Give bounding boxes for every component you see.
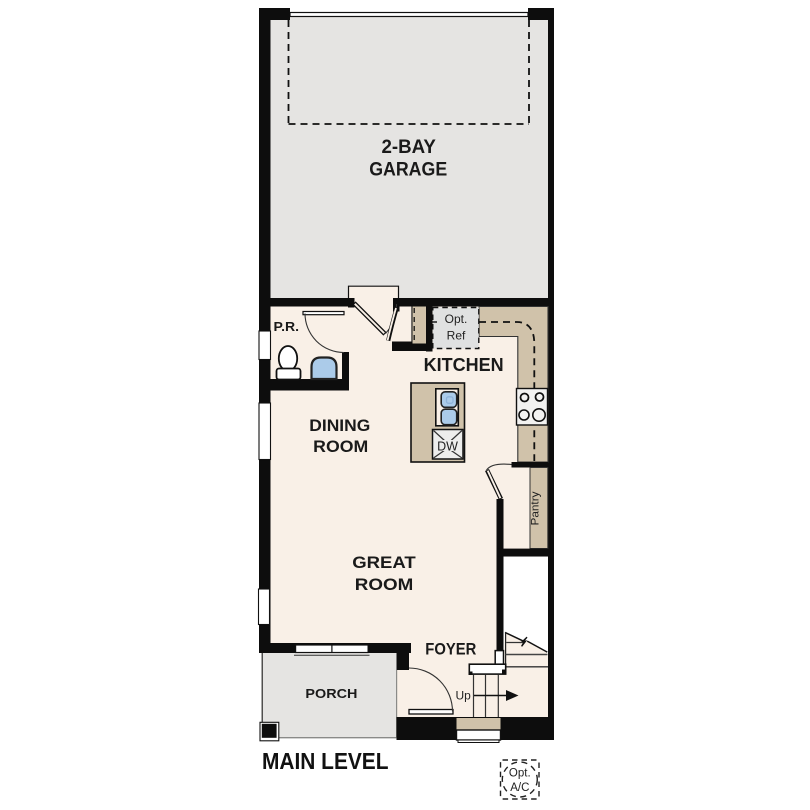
svg-text:ROOM: ROOM: [313, 438, 368, 456]
svg-text:GARAGE: GARAGE: [369, 159, 447, 181]
svg-text:GREAT: GREAT: [352, 554, 416, 572]
svg-text:Opt.: Opt.: [445, 312, 468, 326]
svg-text:Up: Up: [456, 689, 472, 703]
svg-text:2-BAY: 2-BAY: [381, 136, 436, 158]
svg-text:DINING: DINING: [309, 417, 370, 435]
svg-text:P.R.: P.R.: [274, 320, 300, 334]
svg-text:Pantry: Pantry: [530, 491, 542, 526]
svg-text:KITCHEN: KITCHEN: [424, 355, 504, 375]
svg-text:Ref: Ref: [447, 329, 466, 343]
svg-text:PORCH: PORCH: [305, 686, 357, 701]
svg-text:DW: DW: [437, 440, 458, 454]
svg-text:MAIN LEVEL: MAIN LEVEL: [262, 748, 389, 774]
svg-text:A/C: A/C: [510, 782, 529, 794]
svg-text:Opt.: Opt.: [509, 768, 531, 780]
svg-text:ROOM: ROOM: [355, 576, 414, 594]
svg-text:FOYER: FOYER: [425, 641, 476, 659]
